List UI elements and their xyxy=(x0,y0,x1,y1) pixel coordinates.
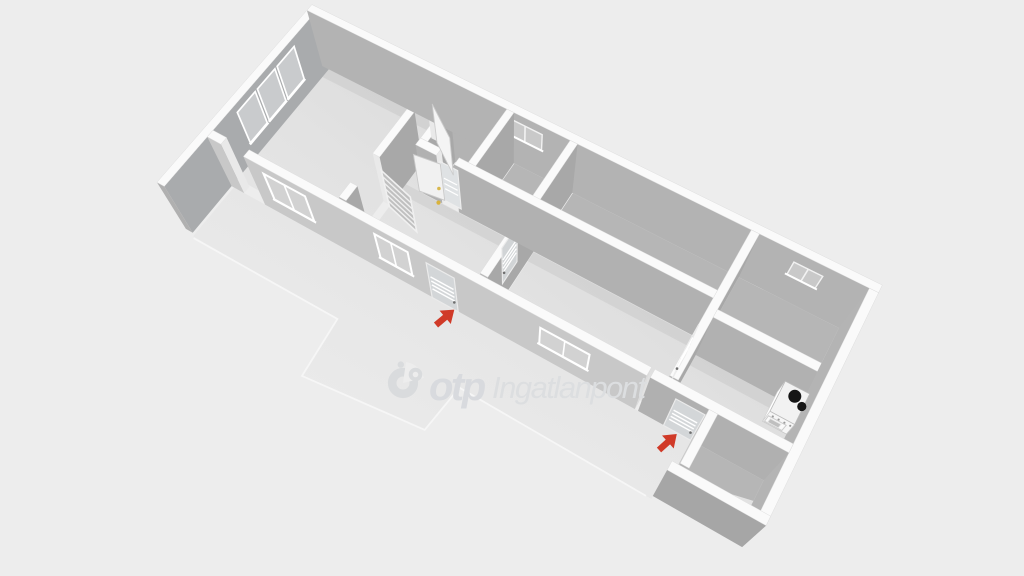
svg-text:Ingatlanpont: Ingatlanpont xyxy=(492,370,648,405)
svg-text:otp: otp xyxy=(429,365,486,409)
